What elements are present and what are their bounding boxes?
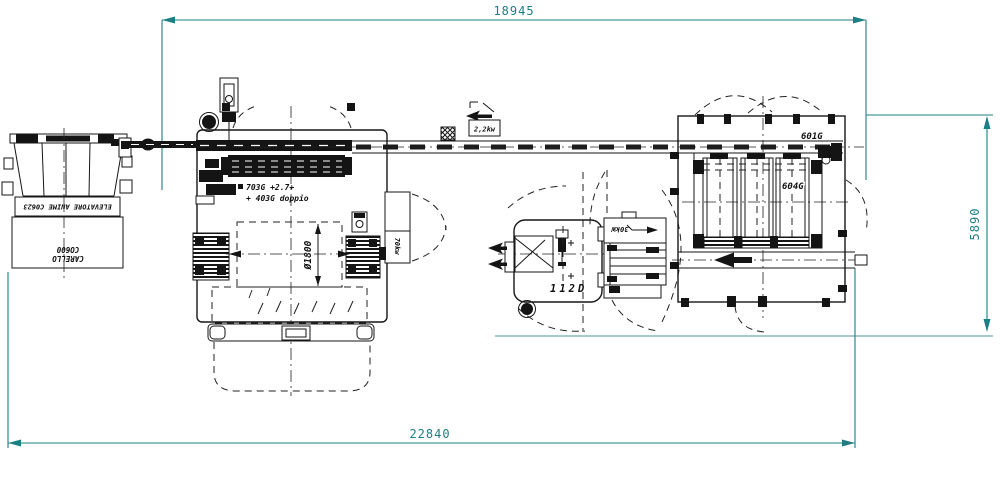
diameter-label: Ø1800 — [303, 240, 314, 270]
power-22kw-label: 2,2kw — [473, 126, 496, 134]
cad-layout-drawing: 18945 5890 22840 ELEVATORE ANIME C0623 — [0, 0, 1000, 495]
machine-601g: 601G — [670, 96, 867, 332]
drawing-svg: 18945 5890 22840 ELEVATORE ANIME C0623 — [0, 0, 1000, 495]
outfeed-conveyor — [672, 250, 867, 270]
machine-112d: 112D 30kW — [488, 170, 681, 332]
power-30kw-label: 30kW — [611, 225, 630, 233]
machine-601g-label: 601G — [801, 132, 823, 142]
dim-top: 18945 — [493, 4, 534, 18]
dim-right: 5890 — [968, 208, 982, 241]
machine-703g: 703G +2.7+ + 403G doppio Ø1800 — [193, 78, 446, 396]
machine-703g-label: 703G +2.7+ — [246, 183, 294, 192]
svg-text:CO600: CO600 — [56, 245, 79, 254]
power-70kw-label: 70kw — [393, 238, 401, 256]
svg-text:CARELLO: CARELLO — [52, 254, 84, 263]
dim-bottom: 22840 — [409, 427, 450, 441]
machine-604g-label: 604G — [782, 182, 804, 192]
elevator-label: ELEVATORE ANIME C0623 — [23, 203, 112, 211]
drum-columns — [693, 153, 822, 248]
elevator-unit: ELEVATORE ANIME C0623 CARELLO CO600 — [2, 128, 196, 278]
machine-112d-label: 112D — [550, 283, 587, 295]
machine-403g-label: + 403G doppio — [246, 193, 309, 203]
